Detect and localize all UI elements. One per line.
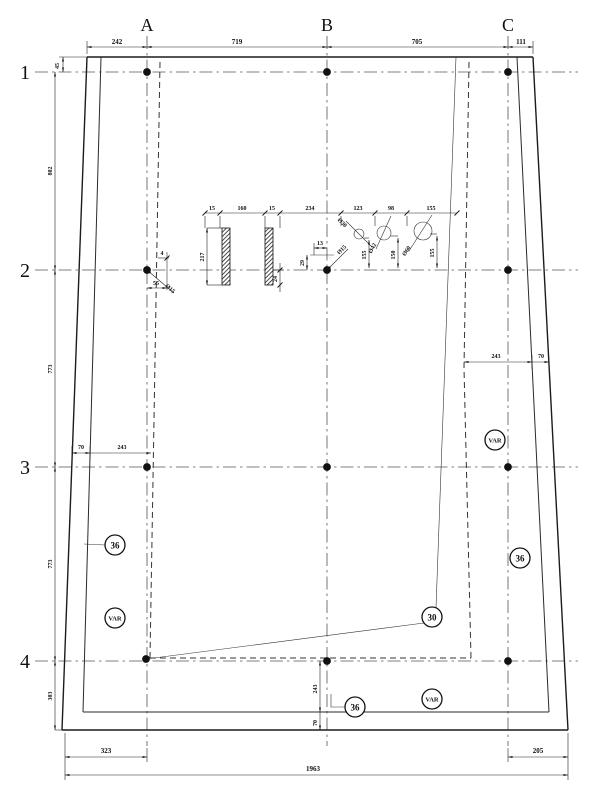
dim-bottom-1963: 1963 bbox=[306, 765, 321, 773]
hole1-dia: Ø30 bbox=[336, 217, 348, 229]
dim-bottom-205: 205 bbox=[533, 747, 544, 755]
dim-anode-4: 4 bbox=[161, 251, 164, 257]
wall-outline bbox=[62, 57, 568, 730]
dim-top-705: 705 bbox=[412, 38, 423, 46]
dim-chain-15a: 15 bbox=[209, 206, 215, 212]
dim-chain-15b: 15 bbox=[269, 206, 275, 212]
dim-bnode-13: 13 bbox=[317, 241, 323, 247]
dim-bnode-dia: Ø15 bbox=[336, 244, 348, 256]
row-label-2: 2 bbox=[20, 260, 30, 282]
marker-36-bottom: 36 bbox=[351, 703, 361, 713]
cad-drawing-page: A B C 1 2 3 4 bbox=[0, 0, 601, 800]
dim-bottom-323: 323 bbox=[101, 747, 112, 755]
dim-left-int-70: 70 bbox=[78, 445, 84, 451]
dim-left-802: 802 bbox=[48, 167, 54, 176]
dim-chain-155: 155 bbox=[427, 206, 436, 212]
marker-var-right: VAR bbox=[488, 438, 502, 445]
dimension-left: 802 773 773 303 bbox=[48, 72, 62, 730]
column-label-b: B bbox=[321, 15, 333, 35]
dim-anode-55: 55 bbox=[153, 281, 159, 287]
plan-drawing-canvas: A B C 1 2 3 4 bbox=[0, 0, 601, 800]
dim-chain-160: 160 bbox=[238, 206, 247, 212]
hatched-wall-bar-1 bbox=[222, 228, 230, 285]
marker-36-left: 36 bbox=[111, 541, 121, 551]
column-label-a: A bbox=[141, 15, 154, 35]
dimension-top: 242 719 705 111 45 bbox=[55, 38, 533, 72]
marker-30-slope: 30 bbox=[428, 613, 438, 623]
row-label-1: 1 bbox=[20, 62, 30, 84]
dim-bottom-b-70: 70 bbox=[313, 720, 319, 726]
dim-bar-height: 217 bbox=[200, 253, 206, 262]
row-label-4: 4 bbox=[20, 651, 30, 673]
position-markers: 36 VAR VAR 36 30 36 VAR bbox=[84, 430, 530, 717]
dim-top-left-45: 45 bbox=[55, 63, 61, 69]
dim-left-303: 303 bbox=[48, 692, 54, 701]
detail-node-a: 4 55 Ø15 bbox=[147, 251, 176, 295]
dim-left-773b: 773 bbox=[48, 560, 54, 569]
dim-top-111: 111 bbox=[516, 38, 526, 46]
hole3-depth: 155 bbox=[430, 249, 436, 258]
interior-dashed-outline bbox=[150, 62, 471, 658]
hatched-wall-bar-2 bbox=[265, 228, 273, 285]
dim-chain-234: 234 bbox=[306, 206, 315, 212]
marker-var-left: VAR bbox=[108, 616, 122, 623]
column-label-c: C bbox=[502, 15, 514, 35]
detail-holes: Ø30 155 Ø42 150 Ø60 155 bbox=[336, 215, 437, 268]
marker-36-right: 36 bbox=[516, 554, 526, 564]
dim-chain-98: 98 bbox=[388, 206, 394, 212]
row-label-3: 3 bbox=[20, 457, 30, 479]
dim-bnode-29: 29 bbox=[300, 260, 306, 266]
dim-bar-small: 24 bbox=[273, 276, 279, 282]
dim-right-int-70: 70 bbox=[538, 354, 544, 360]
dimension-left-interior: 70 243 bbox=[72, 445, 151, 460]
dim-top-242: 242 bbox=[112, 38, 123, 46]
dim-top-719: 719 bbox=[232, 38, 243, 46]
detail-opening-dimensions: 15 160 15 234 123 98 155 217 24 bbox=[200, 206, 460, 292]
dim-chain-123: 123 bbox=[354, 206, 363, 212]
dim-anode-dia: Ø15 bbox=[164, 283, 176, 295]
dim-right-int-243: 243 bbox=[492, 354, 501, 360]
dim-left-int-243: 243 bbox=[118, 445, 127, 451]
slope-lines bbox=[146, 57, 456, 659]
grid-axis-lines bbox=[35, 36, 578, 746]
hole2-depth: 150 bbox=[391, 251, 397, 260]
detail-node-b: 13 29 Ø15 bbox=[300, 241, 348, 270]
dimension-right-interior: 243 70 bbox=[464, 354, 549, 369]
hole3-dia: Ø60 bbox=[402, 245, 413, 257]
dimension-bottom: 323 205 1963 bbox=[65, 733, 568, 780]
dim-left-773a: 773 bbox=[48, 365, 54, 374]
grid-axis-labels: A B C 1 2 3 4 bbox=[20, 15, 514, 673]
dim-bottom-b-243: 243 bbox=[313, 685, 319, 694]
dimension-bottom-b: 243 70 bbox=[313, 661, 320, 730]
marker-var-bottom: VAR bbox=[425, 697, 439, 704]
